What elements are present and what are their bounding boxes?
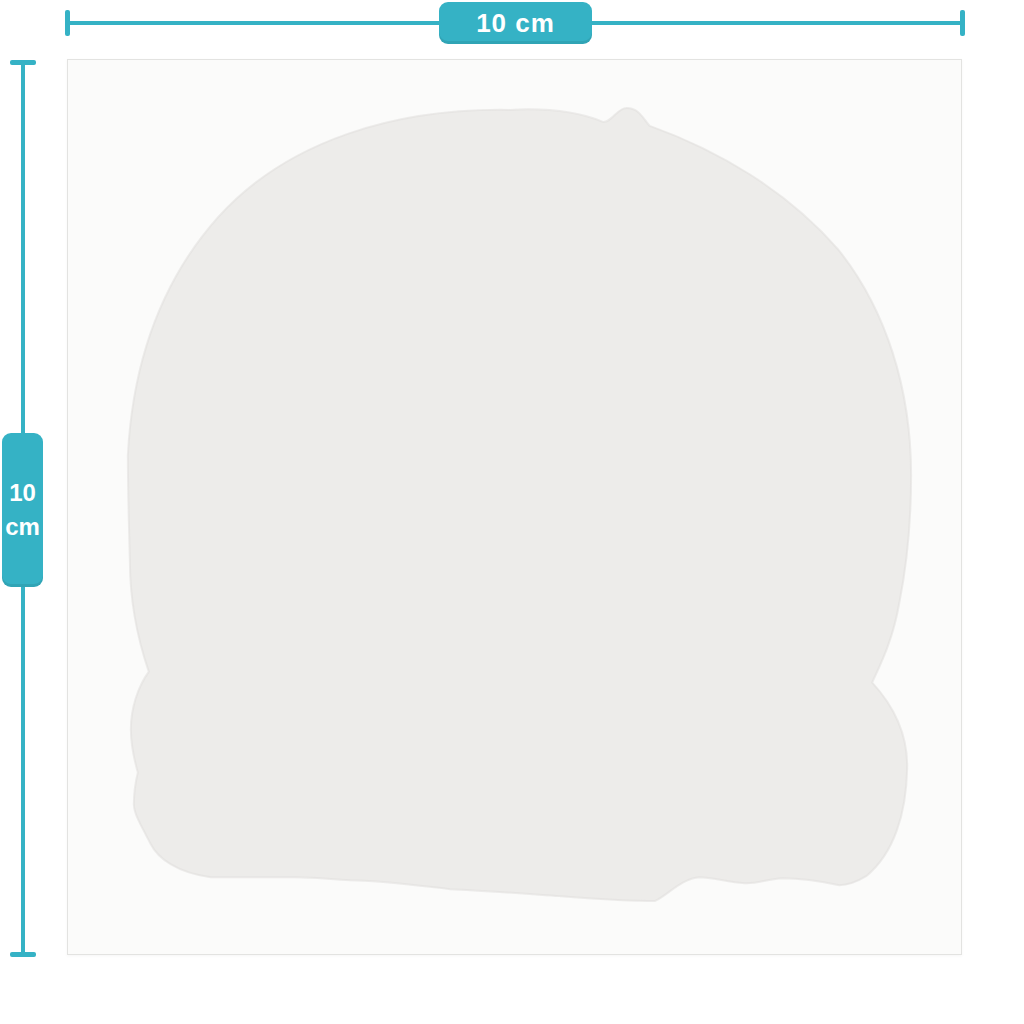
sticker-silhouette-svg: [68, 60, 961, 954]
height-dimension-tick-bottom: [10, 952, 36, 957]
height-dimension-label-value: 10: [9, 476, 36, 510]
product-image-canvas: 10 cm 10 cm: [0, 0, 1024, 1024]
height-dimension-tick-top: [10, 60, 36, 65]
width-dimension-label: 10 cm: [439, 2, 592, 44]
width-dimension-label-text: 10 cm: [476, 8, 555, 39]
width-dimension-tick-left: [65, 10, 70, 36]
die-cut-sticker-silhouette: [128, 108, 911, 901]
sticker-backing-sheet: [67, 59, 962, 955]
width-dimension-tick-right: [960, 10, 965, 36]
height-dimension-label-unit: cm: [5, 510, 40, 544]
height-dimension-label: 10 cm: [2, 433, 43, 587]
